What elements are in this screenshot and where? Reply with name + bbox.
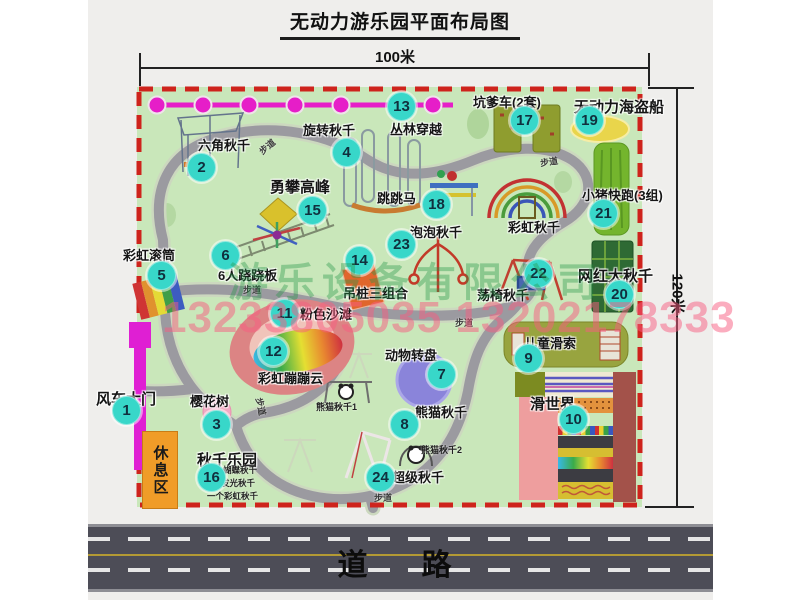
marker-4: 4 bbox=[332, 138, 361, 167]
rest-area: 休息区 bbox=[142, 431, 178, 509]
path-label: 步道 bbox=[374, 491, 392, 504]
marker-22: 22 bbox=[524, 259, 553, 288]
marker-8: 8 bbox=[390, 410, 419, 439]
marker-2: 2 bbox=[187, 153, 216, 182]
dimension-tick bbox=[139, 53, 141, 86]
path-label: 步道 bbox=[539, 154, 559, 169]
marker-20: 20 bbox=[605, 280, 634, 309]
marker-1: 1 bbox=[112, 396, 141, 425]
marker-19: 19 bbox=[575, 106, 604, 135]
marker-23: 23 bbox=[387, 230, 416, 259]
marker-14: 14 bbox=[345, 246, 374, 275]
dimension-tick bbox=[648, 53, 650, 86]
marker-21: 21 bbox=[589, 199, 618, 228]
marker-10: 10 bbox=[559, 405, 588, 434]
marker-9: 9 bbox=[514, 344, 543, 373]
label-panda-swing-1: 熊猫秋千1 bbox=[316, 400, 357, 413]
marker-18: 18 bbox=[422, 190, 451, 219]
marker-11: 11 bbox=[270, 299, 299, 328]
height-dimension-label: 120米 bbox=[668, 273, 689, 313]
path-label: 步道 bbox=[243, 283, 261, 296]
label-rainbow-swing: 彩虹秋千 bbox=[508, 217, 560, 236]
marker-7: 7 bbox=[427, 360, 456, 389]
marker-5: 5 bbox=[147, 261, 176, 290]
label-cherry-tree: 樱花树 bbox=[190, 391, 229, 410]
marker-15: 15 bbox=[298, 196, 327, 225]
label-swing-chair: 荡椅秋千 bbox=[477, 285, 529, 304]
label-rotating-swing: 旋转秋千 bbox=[303, 120, 355, 139]
label-jumping-horse: 跳跳马 bbox=[377, 188, 416, 207]
label-animal-turntable: 动物转盘 bbox=[385, 345, 437, 364]
label-panda-swing: 熊猫秋千 bbox=[415, 402, 467, 421]
label-jungle-crossing: 丛林穿越 bbox=[390, 119, 442, 138]
marker-13: 13 bbox=[387, 92, 416, 121]
width-dimension-label: 100米 bbox=[345, 46, 445, 67]
road-label: 道 路 bbox=[88, 540, 713, 584]
marker-16: 16 bbox=[197, 463, 226, 492]
marker-6: 6 bbox=[211, 241, 240, 270]
path-label: 步道 bbox=[455, 316, 473, 329]
swing-park-note: 一个彩虹秋千 bbox=[207, 490, 258, 502]
label-pink-beach: 粉色沙滩 bbox=[300, 304, 352, 323]
label-climbing-peak: 勇攀高峰 bbox=[270, 176, 330, 197]
label-rainbow-roller: 彩虹滚筒 bbox=[123, 245, 175, 264]
marker-12: 12 bbox=[259, 337, 288, 366]
marker-17: 17 bbox=[510, 106, 539, 135]
label-panda-swing-2: 熊猫秋千2 bbox=[421, 443, 462, 456]
label-hexagon-swing: 六角秋千 bbox=[198, 135, 250, 154]
label-rainbow-cloud: 彩虹蹦蹦云 bbox=[258, 368, 323, 387]
dimension-tick bbox=[645, 506, 694, 508]
label-super-swing: 超级秋千 bbox=[392, 467, 444, 486]
label-bubble-swing: 泡泡秋千 bbox=[410, 222, 462, 241]
marker-24: 24 bbox=[366, 463, 395, 492]
dimension-line-top bbox=[140, 67, 650, 69]
label-hanging-pile: 吊桩三组合 bbox=[343, 283, 408, 302]
road: 道 路 bbox=[88, 524, 713, 592]
marker-3: 3 bbox=[202, 410, 231, 439]
dimension-tick bbox=[648, 87, 694, 89]
page-title: 无动力游乐园平面布局图 bbox=[0, 7, 800, 40]
